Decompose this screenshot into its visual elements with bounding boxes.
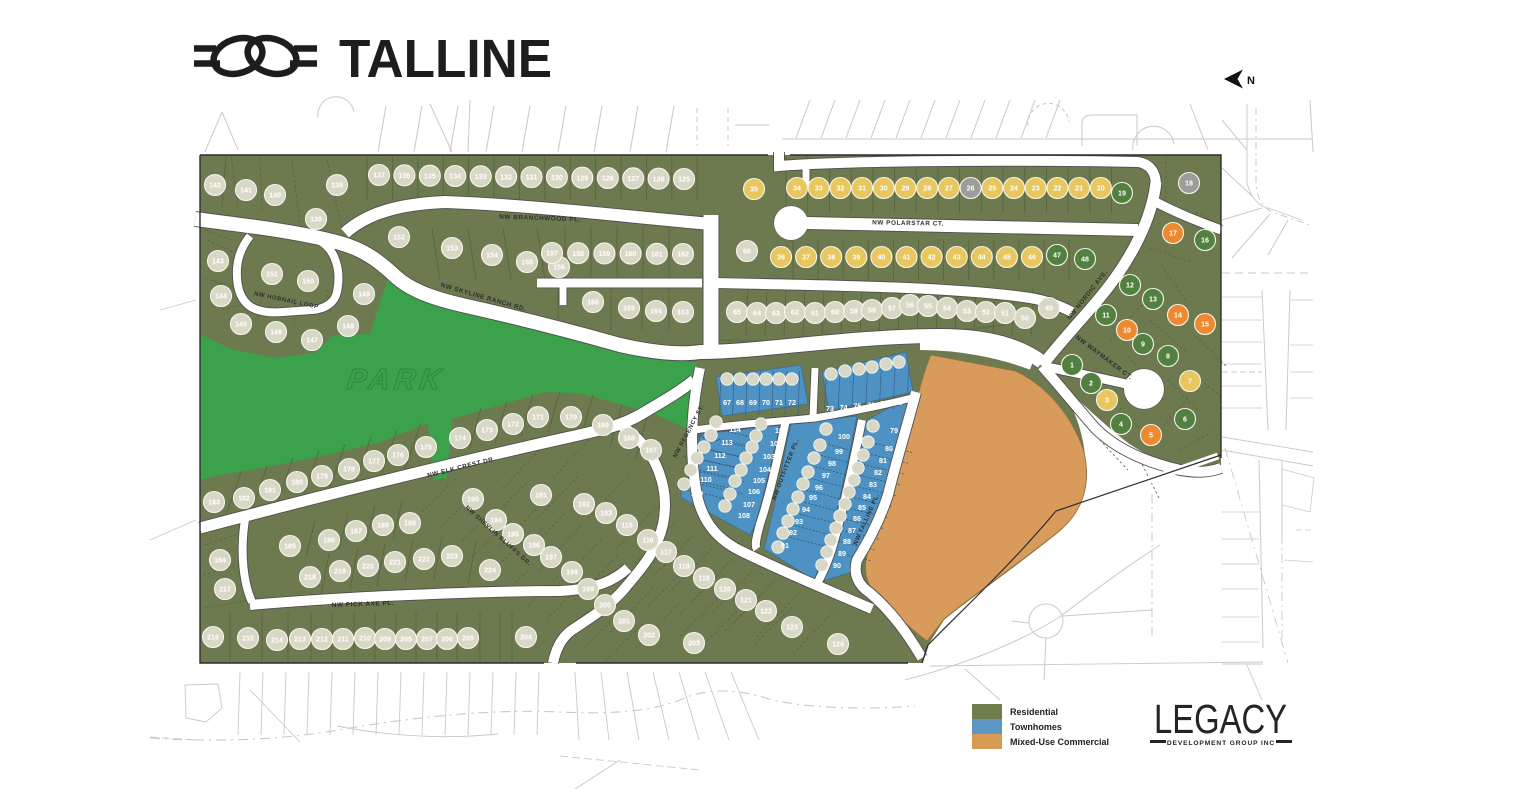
svg-text:147: 147: [306, 337, 318, 345]
svg-text:75: 75: [853, 402, 861, 411]
svg-text:127: 127: [627, 175, 639, 183]
svg-text:2: 2: [1089, 380, 1093, 388]
svg-text:119: 119: [698, 575, 709, 583]
svg-text:214: 214: [271, 637, 283, 645]
svg-text:99: 99: [835, 447, 843, 456]
svg-text:53: 53: [963, 308, 971, 316]
svg-text:1: 1: [1070, 362, 1074, 370]
svg-text:83: 83: [869, 480, 877, 489]
svg-text:64: 64: [753, 310, 761, 318]
svg-text:59: 59: [850, 308, 858, 316]
svg-text:96: 96: [815, 483, 823, 492]
svg-text:167: 167: [645, 447, 657, 455]
svg-text:46: 46: [1028, 254, 1036, 262]
svg-text:94: 94: [802, 505, 810, 514]
svg-text:176: 176: [392, 452, 404, 460]
svg-text:169: 169: [597, 422, 609, 430]
svg-text:55: 55: [924, 303, 932, 311]
svg-text:125: 125: [678, 176, 690, 184]
svg-text:20: 20: [1097, 185, 1105, 193]
svg-text:165: 165: [623, 305, 635, 313]
svg-text:112: 112: [714, 451, 726, 460]
svg-text:41: 41: [903, 254, 911, 262]
svg-text:154: 154: [486, 252, 498, 260]
svg-text:100: 100: [838, 432, 850, 441]
svg-text:209: 209: [379, 636, 391, 644]
svg-text:206: 206: [441, 636, 453, 644]
svg-text:175: 175: [420, 444, 432, 452]
svg-text:57: 57: [888, 305, 896, 313]
svg-text:164: 164: [650, 308, 662, 316]
svg-text:170: 170: [565, 414, 577, 422]
svg-text:101: 101: [775, 426, 787, 435]
svg-text:16: 16: [1201, 237, 1209, 245]
svg-text:38: 38: [827, 254, 835, 262]
svg-text:72: 72: [788, 398, 796, 407]
svg-text:97: 97: [822, 471, 830, 480]
svg-text:22: 22: [1053, 185, 1061, 193]
svg-text:158: 158: [572, 250, 584, 258]
svg-text:44: 44: [978, 254, 986, 262]
svg-text:23: 23: [1032, 185, 1040, 193]
svg-text:121: 121: [740, 597, 752, 605]
svg-text:143: 143: [212, 258, 224, 266]
svg-text:197: 197: [545, 554, 557, 562]
svg-text:139: 139: [310, 216, 322, 224]
svg-text:77: 77: [881, 399, 889, 408]
svg-text:26: 26: [967, 185, 975, 193]
svg-text:39: 39: [852, 254, 860, 262]
svg-text:67: 67: [723, 398, 731, 407]
svg-text:190: 190: [467, 496, 479, 504]
svg-text:151: 151: [266, 271, 278, 279]
svg-text:69: 69: [749, 398, 757, 407]
svg-text:48: 48: [1081, 256, 1089, 264]
svg-text:19: 19: [1118, 190, 1126, 198]
svg-text:130: 130: [551, 174, 563, 182]
svg-text:144: 144: [215, 293, 227, 301]
svg-text:208: 208: [400, 636, 412, 644]
svg-text:Townhomes: Townhomes: [1010, 722, 1062, 732]
svg-text:156: 156: [553, 264, 565, 272]
svg-text:222: 222: [418, 556, 430, 564]
svg-text:187: 187: [350, 528, 362, 536]
svg-text:128: 128: [602, 175, 614, 183]
svg-text:212: 212: [316, 636, 328, 644]
svg-text:90: 90: [833, 561, 841, 570]
svg-text:134: 134: [449, 173, 461, 181]
svg-text:122: 122: [760, 608, 772, 616]
svg-text:31: 31: [858, 185, 866, 193]
svg-text:56: 56: [906, 302, 914, 310]
svg-text:182: 182: [238, 495, 250, 503]
svg-text:202: 202: [643, 632, 655, 640]
svg-text:Mixed-Use Commercial: Mixed-Use Commercial: [1010, 737, 1109, 747]
svg-text:178: 178: [343, 466, 355, 474]
svg-text:93: 93: [795, 517, 803, 526]
svg-text:34: 34: [793, 185, 801, 193]
svg-text:163: 163: [677, 309, 689, 317]
svg-text:199: 199: [582, 586, 594, 594]
svg-text:205: 205: [462, 635, 474, 643]
svg-text:173: 173: [481, 427, 493, 435]
svg-text:73: 73: [826, 404, 834, 413]
svg-text:11: 11: [1102, 312, 1110, 320]
svg-text:84: 84: [863, 492, 871, 501]
svg-text:136: 136: [398, 172, 410, 180]
svg-text:24: 24: [1010, 185, 1018, 193]
svg-text:211: 211: [337, 636, 348, 644]
svg-text:62: 62: [791, 309, 799, 317]
svg-text:PARK: PARK: [345, 364, 447, 396]
svg-text:184: 184: [214, 557, 226, 565]
svg-text:162: 162: [677, 251, 689, 259]
svg-text:29: 29: [902, 185, 910, 193]
svg-text:181: 181: [264, 487, 276, 495]
svg-text:Residential: Residential: [1010, 707, 1058, 717]
svg-text:85: 85: [858, 503, 866, 512]
svg-text:102: 102: [770, 439, 782, 448]
svg-text:146: 146: [270, 329, 282, 337]
svg-text:LEGACY: LEGACY: [1154, 696, 1287, 742]
svg-text:183: 183: [208, 499, 220, 507]
svg-text:106: 106: [748, 487, 760, 496]
svg-text:80: 80: [885, 444, 893, 453]
svg-text:207: 207: [421, 636, 433, 644]
svg-text:140: 140: [269, 192, 281, 200]
svg-text:35: 35: [750, 186, 758, 194]
svg-text:113: 113: [721, 438, 733, 447]
svg-text:117: 117: [660, 549, 671, 557]
svg-text:65: 65: [733, 309, 741, 317]
svg-text:172: 172: [507, 421, 519, 429]
svg-text:9: 9: [1141, 341, 1145, 349]
svg-text:217: 217: [219, 586, 231, 594]
svg-text:193: 193: [600, 510, 612, 518]
svg-text:210: 210: [359, 635, 371, 643]
svg-text:150: 150: [302, 278, 314, 286]
svg-text:82: 82: [874, 468, 882, 477]
svg-text:177: 177: [368, 458, 380, 466]
svg-text:189: 189: [404, 520, 416, 528]
svg-text:95: 95: [809, 493, 817, 502]
svg-text:116: 116: [642, 537, 653, 545]
svg-text:148: 148: [342, 323, 354, 331]
svg-text:180: 180: [291, 479, 303, 487]
svg-text:49: 49: [1045, 305, 1053, 313]
svg-text:201: 201: [618, 618, 630, 626]
svg-text:220: 220: [362, 563, 374, 571]
svg-text:37: 37: [802, 254, 810, 262]
svg-text:138: 138: [331, 182, 343, 190]
svg-text:107: 107: [743, 500, 755, 509]
svg-text:15: 15: [1201, 321, 1209, 329]
svg-text:33: 33: [815, 185, 823, 193]
svg-text:10: 10: [1123, 327, 1131, 335]
svg-text:110: 110: [700, 475, 712, 484]
svg-text:160: 160: [625, 250, 637, 258]
svg-text:115: 115: [621, 522, 632, 530]
svg-text:133: 133: [475, 173, 487, 181]
svg-text:166: 166: [587, 299, 599, 307]
svg-text:223: 223: [446, 553, 458, 561]
svg-text:137: 137: [373, 172, 385, 180]
svg-text:7: 7: [1188, 378, 1192, 386]
svg-text:171: 171: [532, 414, 544, 422]
svg-text:79: 79: [890, 426, 898, 435]
svg-text:179: 179: [316, 473, 328, 481]
svg-text:14: 14: [1174, 312, 1182, 320]
svg-text:216: 216: [207, 634, 219, 642]
svg-text:132: 132: [500, 173, 512, 181]
svg-text:50: 50: [1021, 315, 1029, 323]
svg-text:12: 12: [1126, 282, 1134, 290]
svg-text:200: 200: [599, 602, 611, 610]
svg-text:66: 66: [743, 248, 751, 256]
svg-text:88: 88: [843, 537, 851, 546]
svg-text:104: 104: [759, 465, 771, 474]
svg-text:111: 111: [706, 464, 717, 473]
svg-text:60: 60: [831, 309, 839, 317]
svg-text:215: 215: [242, 635, 254, 643]
svg-text:45: 45: [1003, 254, 1011, 262]
svg-text:17: 17: [1169, 230, 1177, 238]
svg-text:78: 78: [895, 398, 903, 407]
svg-text:42: 42: [928, 254, 936, 262]
svg-text:6: 6: [1183, 416, 1187, 424]
svg-text:36: 36: [777, 254, 785, 262]
svg-text:153: 153: [446, 245, 458, 253]
svg-text:219: 219: [334, 568, 346, 576]
svg-text:4: 4: [1119, 421, 1123, 429]
svg-text:NW POLARSTAR CT.: NW POLARSTAR CT.: [872, 219, 944, 227]
svg-text:51: 51: [1001, 310, 1009, 318]
svg-text:43: 43: [953, 254, 961, 262]
svg-text:152: 152: [393, 234, 405, 242]
svg-text:21: 21: [1075, 185, 1083, 193]
svg-text:203: 203: [688, 640, 700, 648]
svg-text:89: 89: [838, 549, 846, 558]
svg-text:196: 196: [528, 542, 540, 550]
svg-text:157: 157: [546, 250, 558, 258]
svg-text:129: 129: [576, 174, 588, 182]
svg-text:124: 124: [832, 641, 844, 649]
svg-text:47: 47: [1053, 252, 1061, 260]
svg-text:213: 213: [294, 636, 306, 644]
svg-text:159: 159: [598, 250, 610, 258]
svg-text:32: 32: [836, 185, 844, 193]
svg-text:114: 114: [729, 425, 741, 434]
svg-text:30: 30: [880, 185, 888, 193]
svg-text:13: 13: [1149, 296, 1157, 304]
svg-text:3: 3: [1105, 397, 1109, 405]
svg-text:191: 191: [535, 492, 547, 500]
svg-text:145: 145: [235, 321, 247, 329]
svg-text:71: 71: [775, 398, 783, 407]
svg-text:5: 5: [1149, 432, 1153, 440]
svg-text:118: 118: [678, 563, 689, 571]
svg-text:161: 161: [651, 250, 663, 258]
svg-text:123: 123: [786, 624, 798, 632]
svg-text:86: 86: [853, 514, 861, 523]
svg-text:105: 105: [753, 476, 765, 485]
svg-text:218: 218: [304, 574, 316, 582]
svg-text:185: 185: [284, 543, 296, 551]
svg-text:108: 108: [738, 511, 750, 520]
svg-text:174: 174: [454, 435, 466, 443]
svg-text:224: 224: [484, 567, 496, 575]
svg-text:58: 58: [868, 307, 876, 315]
svg-text:192: 192: [578, 501, 590, 509]
svg-text:91: 91: [781, 541, 789, 550]
svg-text:81: 81: [879, 456, 887, 465]
svg-text:149: 149: [358, 291, 370, 299]
svg-text:DEVELOPMENT GROUP INC: DEVELOPMENT GROUP INC: [1167, 740, 1275, 747]
svg-text:204: 204: [520, 634, 532, 642]
svg-text:103: 103: [763, 452, 775, 461]
svg-text:N: N: [1247, 75, 1255, 87]
svg-text:52: 52: [982, 309, 990, 317]
svg-text:135: 135: [424, 172, 436, 180]
svg-text:168: 168: [623, 435, 635, 443]
svg-text:63: 63: [772, 310, 780, 318]
svg-text:87: 87: [848, 526, 856, 535]
svg-text:40: 40: [877, 254, 885, 262]
svg-text:76: 76: [867, 400, 875, 409]
svg-text:TALLINE: TALLINE: [339, 29, 552, 89]
svg-text:109: 109: [691, 489, 703, 498]
svg-text:61: 61: [811, 310, 819, 318]
svg-text:194: 194: [490, 517, 502, 525]
svg-text:186: 186: [323, 537, 335, 545]
svg-text:141: 141: [240, 187, 252, 195]
svg-text:198: 198: [566, 569, 578, 577]
svg-text:92: 92: [789, 528, 797, 537]
svg-text:221: 221: [389, 559, 401, 567]
svg-text:188: 188: [377, 522, 389, 530]
svg-text:70: 70: [762, 398, 770, 407]
svg-text:25: 25: [988, 185, 996, 193]
svg-text:195: 195: [507, 531, 519, 539]
svg-text:27: 27: [945, 185, 953, 193]
svg-text:54: 54: [943, 305, 951, 313]
svg-text:126: 126: [653, 175, 665, 183]
svg-text:74: 74: [840, 403, 848, 412]
svg-text:131: 131: [526, 174, 538, 182]
svg-text:68: 68: [736, 398, 744, 407]
svg-text:142: 142: [209, 182, 221, 190]
svg-text:18: 18: [1185, 180, 1193, 188]
svg-text:98: 98: [828, 459, 836, 468]
svg-text:155: 155: [521, 259, 533, 267]
svg-text:8: 8: [1166, 353, 1170, 361]
svg-text:120: 120: [719, 586, 731, 594]
svg-text:28: 28: [923, 185, 931, 193]
